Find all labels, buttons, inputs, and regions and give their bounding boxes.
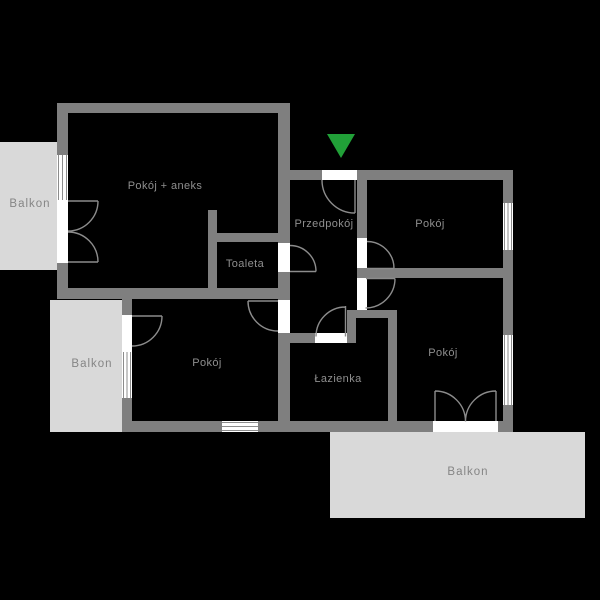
entrance-door-swing [322, 180, 355, 213]
wall-sw-room-west-2 [122, 398, 132, 432]
room-label-pokoj-aneks: Pokój + aneks [128, 180, 203, 192]
room-br-door-swing [366, 279, 396, 309]
room-label-pokoj-bottom-left: Pokój [192, 357, 222, 369]
room-label-toaleta: Toaleta [226, 258, 264, 270]
wall-top-left-room-north [57, 103, 290, 113]
balcony-label-top-left: Balkon [9, 198, 50, 210]
floorplan-drawing [0, 0, 600, 600]
opening-room-br-door [357, 278, 367, 310]
opening-room-tr-door [357, 238, 367, 268]
wall-west-lower [57, 263, 68, 299]
french-door-west [68, 201, 98, 262]
wall-north-right [357, 170, 513, 180]
lazienka-door-swing [316, 306, 346, 337]
wall-center-2 [278, 272, 290, 300]
opening-lazienka-door [315, 333, 347, 343]
room-tr-door-swing [367, 242, 394, 269]
wall-center-3 [278, 333, 290, 432]
wall-south-1 [122, 421, 222, 432]
wall-east-1 [503, 170, 513, 203]
balconies [0, 142, 585, 518]
wall-toaleta-north [208, 233, 290, 242]
wall-lazienka-east [388, 318, 397, 432]
wall-lazienka-step [347, 310, 356, 343]
balcony-label-bottom: Balkon [447, 466, 488, 478]
opening-balcony-french-door-south [433, 421, 498, 432]
wall-between-right-rooms [357, 268, 513, 278]
toaleta-door-swing [290, 246, 316, 272]
room-label-pokoj-bottom-right: Pokój [428, 347, 458, 359]
opening-toaleta-door [278, 243, 290, 272]
french-door-south-swing [435, 391, 496, 422]
wall-hall-east [357, 180, 367, 238]
wall-sw-room-west-1 [122, 288, 132, 315]
room-bl-door-swing [248, 301, 278, 331]
entrance-arrow-down-icon [327, 134, 355, 158]
opening-room-bl-door [278, 300, 290, 333]
opening-balcony-french-door [57, 200, 68, 263]
wall-east-3 [503, 405, 513, 432]
opening-balcony-door-bl [122, 315, 132, 352]
wall-west-upper [57, 103, 68, 155]
wall-center-1 [278, 103, 290, 243]
opening-entrance-door [322, 170, 357, 180]
floorplan-canvas: Pokój + aneks Przedpokój Pokój Toaleta P… [0, 0, 600, 600]
balcony-label-bottom-left: Balkon [71, 358, 112, 370]
room-label-lazienka: Łazienka [314, 373, 361, 385]
wall-east-2 [503, 250, 513, 335]
balcony-door-bl-swing [132, 316, 162, 346]
wall-mid-west [57, 288, 290, 299]
room-label-pokoj-top-right: Pokój [415, 218, 445, 230]
room-label-przedpokoj: Przedpokój [294, 218, 353, 230]
wall-aneks-stub [208, 210, 217, 299]
